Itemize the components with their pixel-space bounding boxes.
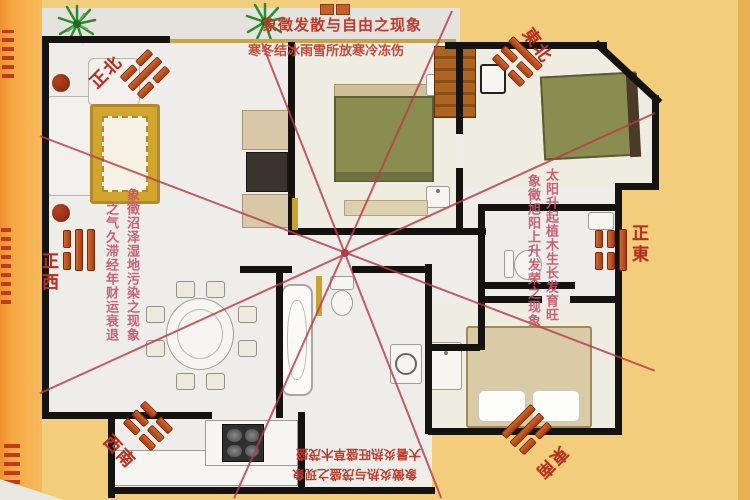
wall-right-step — [618, 183, 658, 190]
cabinet-icon — [242, 110, 290, 150]
wall-bottom-outer — [108, 487, 435, 494]
rug-center — [102, 116, 148, 192]
wardrobe-icon — [434, 46, 476, 118]
annotation-east-outer: 太阳升起植木生长发育旺 — [541, 168, 560, 350]
wall-se-top-b — [570, 296, 616, 303]
annotation-west-inner: 象徵沼泽湿地污染之现象 — [122, 188, 141, 363]
annotation-west-outer: 之气久滞经年财运衰退 — [101, 202, 120, 362]
edge-mark-icon — [2, 30, 14, 78]
bed-icon — [540, 72, 640, 161]
direction-label-west: 正西 — [36, 252, 61, 294]
door-strip — [292, 198, 298, 230]
edge-mark-icon — [4, 444, 20, 484]
sink-icon — [588, 212, 614, 230]
wall-left-outer — [42, 36, 49, 418]
wall-bath1-left — [478, 204, 485, 350]
bottom-left-yellow-inset — [42, 419, 108, 500]
tv-cabinet-icon — [246, 152, 288, 192]
annotation-north-1: 象徵发散与自由之现象 — [262, 14, 422, 35]
chair-icon — [206, 373, 225, 390]
fengshui-floorplan: 正北 東北 正東 東南 西南 正西 象徵发散与自由之现象 寒冬结冰雨雪所放寒冷冻… — [0, 0, 750, 500]
chair-icon — [176, 373, 195, 390]
annotation-north-2: 寒冬结冰雨雪所放寒冷冻伤 — [248, 40, 404, 59]
bed-foot — [336, 172, 432, 181]
right-margin-strip — [738, 0, 750, 500]
center-point — [341, 249, 349, 257]
wall-ne-right — [652, 95, 659, 190]
annotation-south-1: 大暑炎热旺盛草木茂盛 — [296, 446, 421, 465]
wall-top-left — [42, 36, 170, 43]
bed-icon — [334, 96, 434, 182]
trigram-zhen-icon — [595, 229, 627, 271]
wall-corridor — [428, 344, 480, 351]
trigram-dui-icon — [63, 229, 95, 271]
wall-bottom-left-h — [42, 412, 116, 419]
chair-icon — [146, 306, 165, 323]
plant-stool-icon — [52, 204, 70, 222]
chair-icon — [206, 281, 225, 298]
bench-icon — [344, 200, 428, 216]
direction-label-east: 正東 — [626, 224, 651, 266]
annotation-south-2: 象徵炎热与茂盛之现象 — [292, 466, 417, 485]
nightstand-icon — [426, 186, 450, 208]
edge-mark-icon — [1, 226, 11, 304]
chair-icon — [238, 306, 257, 323]
wall-right-lower — [615, 183, 622, 435]
toilet-icon — [331, 290, 353, 316]
direction-label-southeast: 東南 — [531, 442, 576, 487]
toilet-tank — [504, 250, 514, 278]
annotation-east-inner: 象徵旭阳上升发荣之现象 — [523, 174, 542, 349]
chair-icon — [176, 281, 195, 298]
chair-icon — [238, 340, 257, 357]
plant-stool-icon — [52, 74, 70, 92]
wall-bath3-top-a — [240, 266, 292, 273]
wall-bedroom-right-a — [456, 42, 463, 134]
